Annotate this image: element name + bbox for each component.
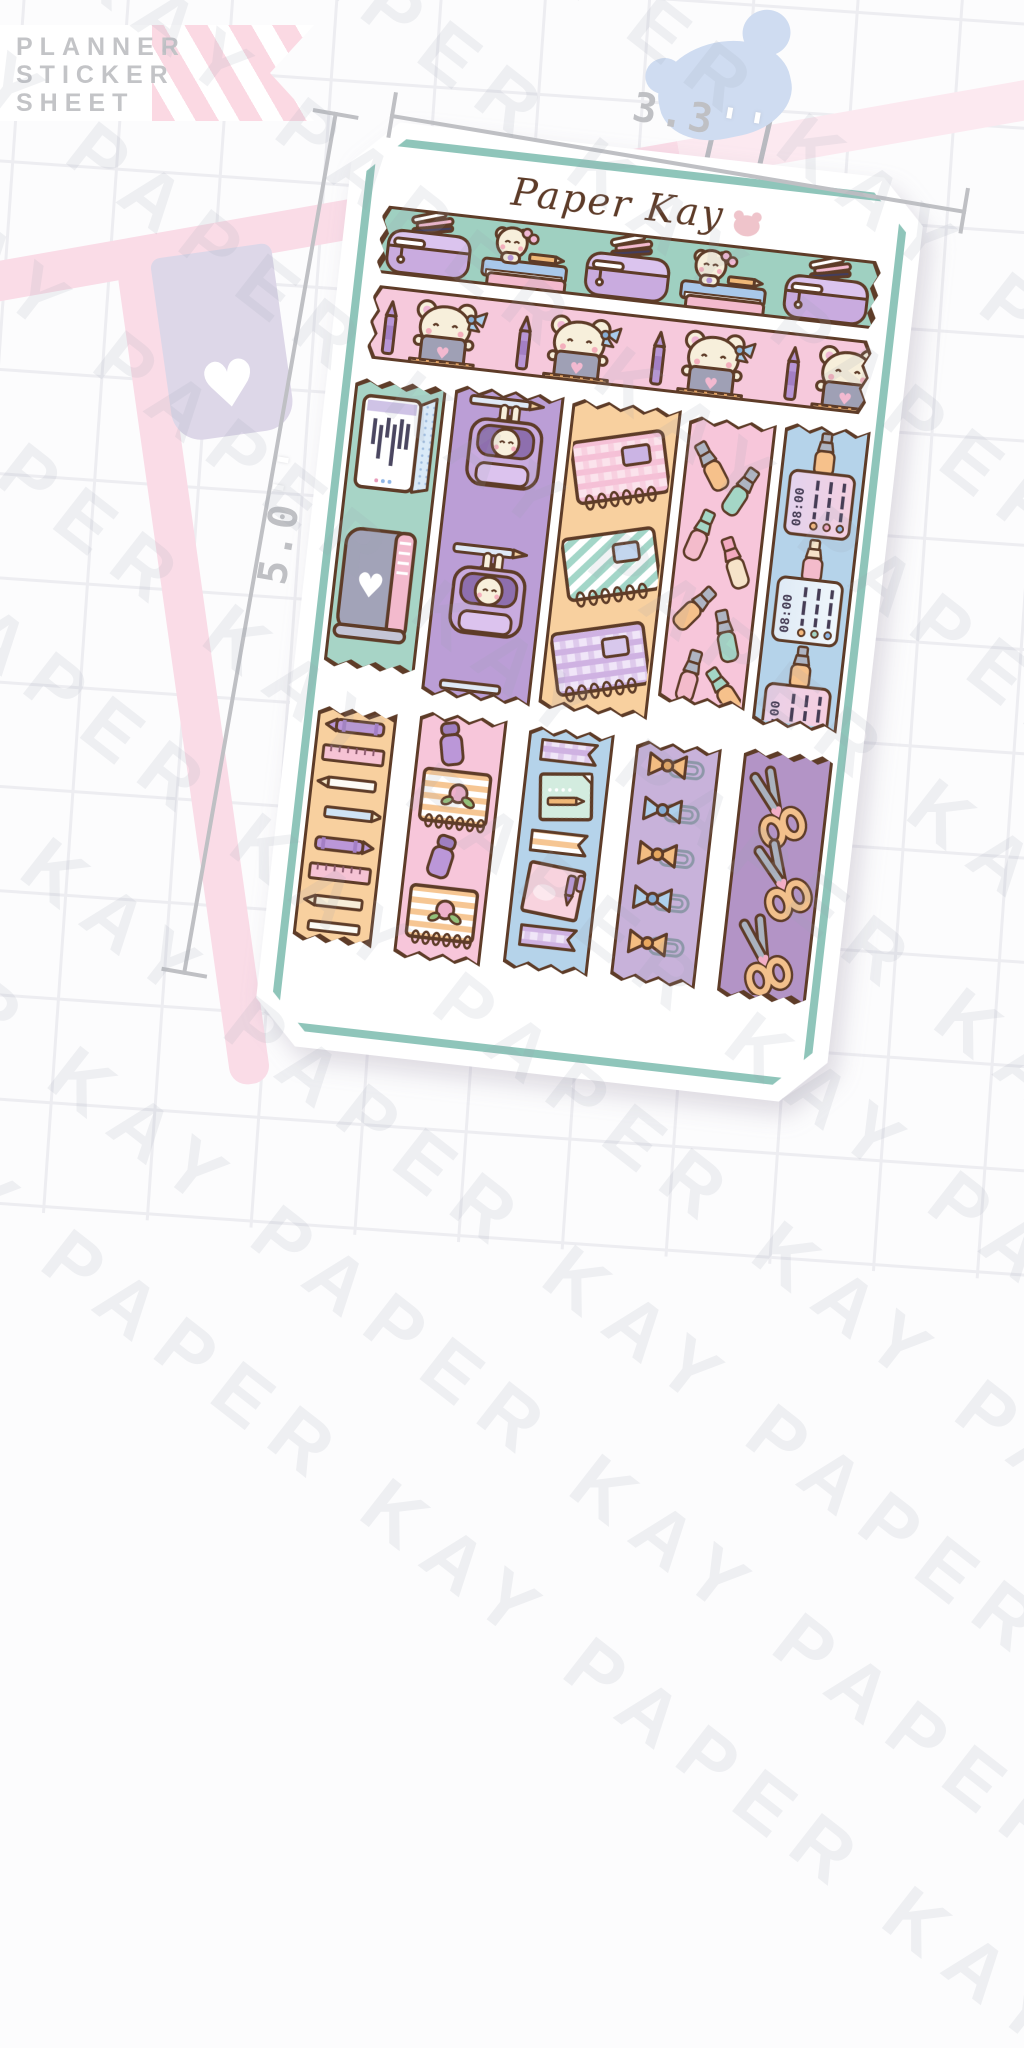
sticker-row-middle: ♥ [321, 373, 871, 742]
badge-line-2: STICKER [16, 61, 186, 89]
sheet-paper: Paper Kay [251, 117, 928, 1106]
highlighter-pattern-art [662, 421, 771, 706]
badge-text: PLANNER STICKER SHEET [16, 33, 186, 117]
sticker-sheet: Paper Kay [251, 117, 928, 1106]
heart-icon: ♥ [196, 350, 262, 421]
brand-bear-icon [732, 213, 760, 237]
schedule-card: 08:00 [771, 576, 842, 646]
sticker-notes-flags [502, 725, 615, 977]
bookmark-clip: ♥ [150, 242, 297, 443]
bow-clips-art [615, 745, 717, 984]
badge-line-1: PLANNER [16, 33, 186, 61]
planner-sticker-sheet-badge: PLANNER STICKER SHEET [0, 25, 314, 121]
notebook-sticker-art [543, 403, 677, 714]
backpack-sticker-art [426, 390, 560, 701]
badge-line-3: SHEET [16, 89, 186, 117]
schedule-card: 08:00 [759, 683, 830, 728]
notes-flags-art [507, 730, 609, 971]
sticker-bow-clips [609, 739, 722, 989]
schedule-card: 08:00 [783, 470, 854, 540]
sticker-pens-notebooks [392, 710, 508, 966]
pens-notebooks-art [398, 716, 502, 961]
svg-text:♥: ♥ [353, 564, 386, 607]
